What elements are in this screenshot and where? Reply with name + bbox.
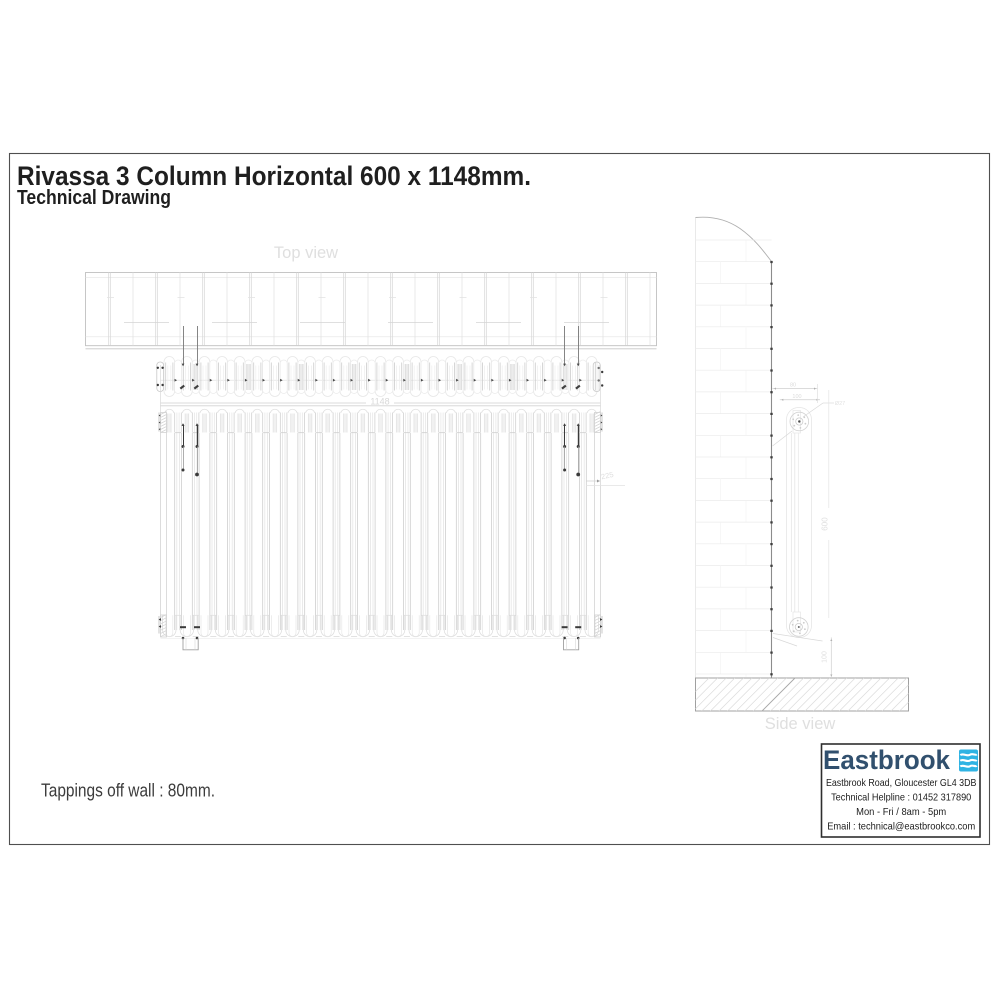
svg-text:80: 80 [790, 383, 796, 389]
svg-text:Eastbrook Road, Gloucester GL4: Eastbrook Road, Gloucester GL4 3DB [826, 777, 977, 789]
svg-text:Technical Drawing: Technical Drawing [17, 187, 171, 209]
svg-text:Eastbrook: Eastbrook [823, 745, 950, 775]
svg-text:100: 100 [822, 651, 829, 663]
svg-text:Mon - Fri / 8am - 5pm: Mon - Fri / 8am - 5pm [856, 806, 946, 818]
svg-text:225: 225 [600, 470, 614, 481]
svg-text:Top view: Top view [274, 244, 338, 262]
svg-text:600: 600 [821, 517, 830, 531]
svg-text:Technical Helpline : 01452 317: Technical Helpline : 01452 317890 [831, 792, 971, 804]
svg-text:Email : technical@eastbrookco.: Email : technical@eastbrookco.com [827, 821, 975, 833]
svg-text:Side view: Side view [765, 715, 836, 733]
svg-text:Ø27: Ø27 [835, 401, 845, 407]
svg-text:1148: 1148 [370, 397, 389, 407]
svg-text:100: 100 [792, 394, 801, 400]
svg-text:Tappings off wall : 80mm.: Tappings off wall : 80mm. [41, 780, 215, 801]
